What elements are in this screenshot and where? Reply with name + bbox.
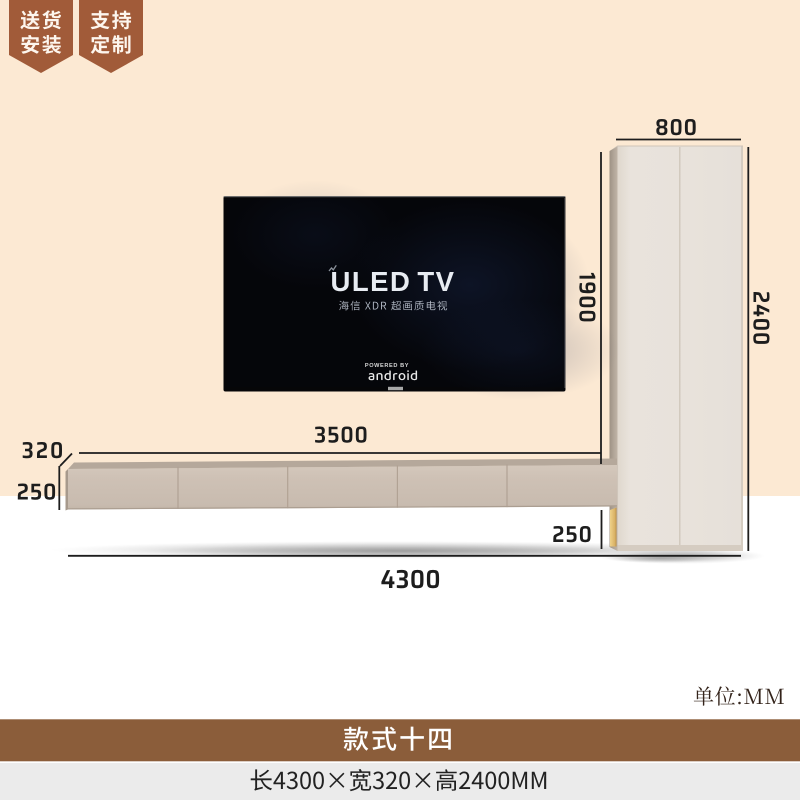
- svg-text:ULEDTV: ULEDTV: [330, 266, 455, 297]
- svg-text:POWERED BY: POWERED BY: [365, 363, 409, 369]
